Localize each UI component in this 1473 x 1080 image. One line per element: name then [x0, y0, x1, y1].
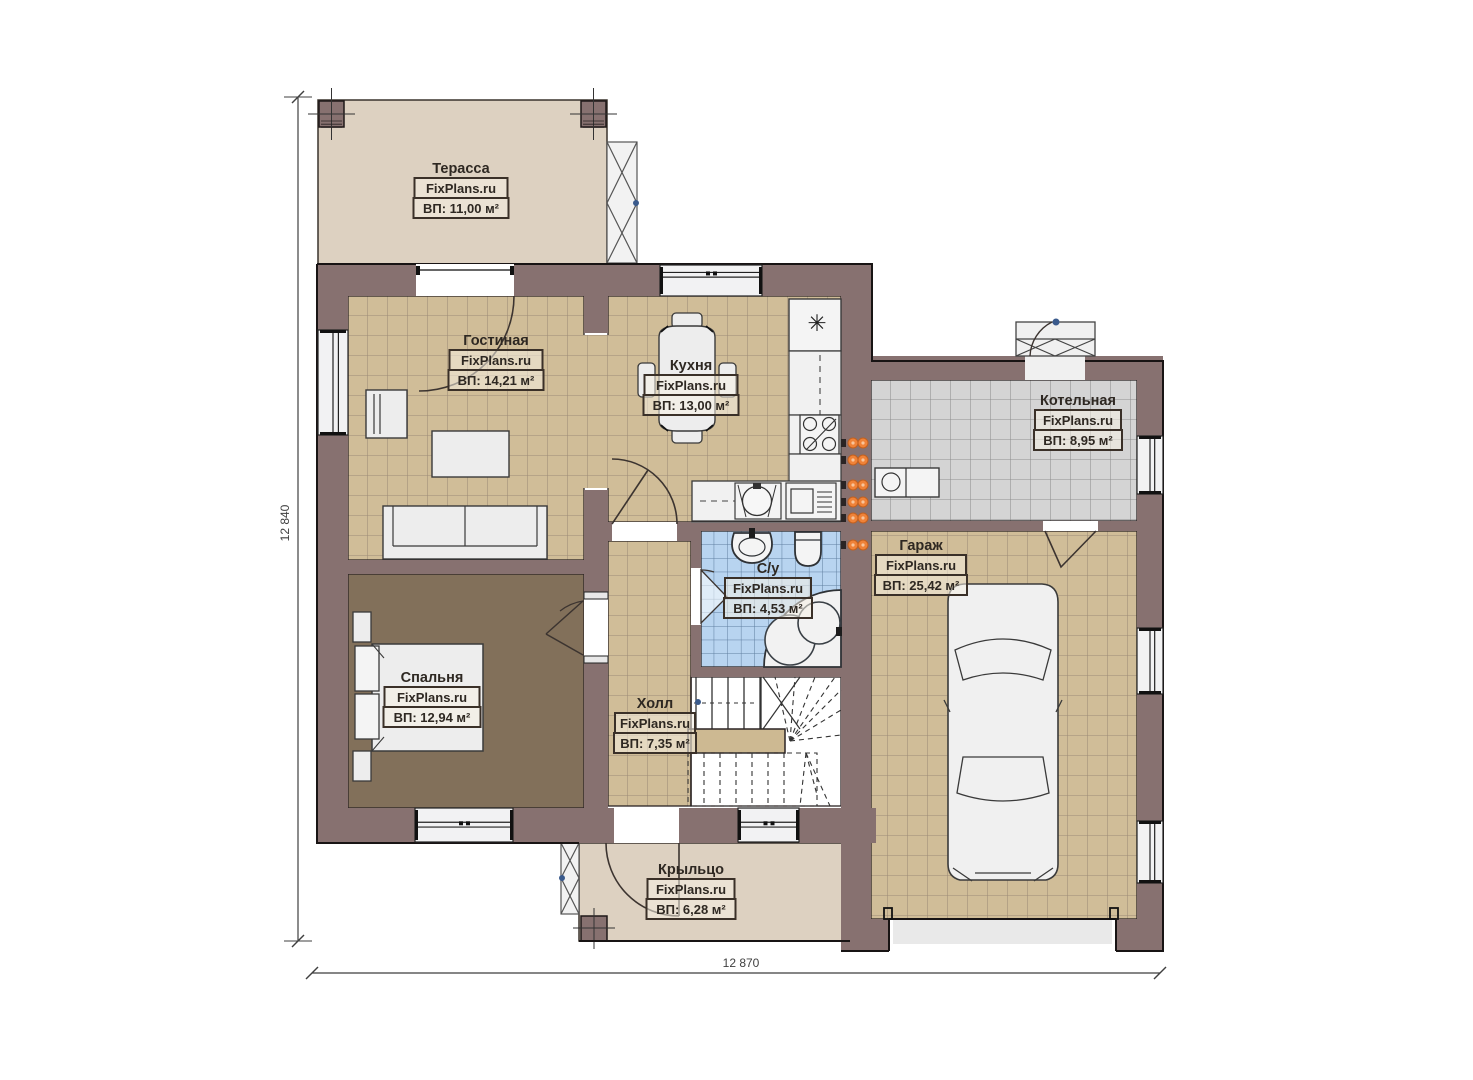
svg-text:Холл: Холл — [637, 696, 673, 712]
svg-text:ВП: 13,00 м²: ВП: 13,00 м² — [653, 398, 730, 413]
svg-text:ВП: 4,53 м²: ВП: 4,53 м² — [733, 601, 803, 616]
svg-text:FixPlans.ru: FixPlans.ru — [733, 581, 803, 596]
svg-text:FixPlans.ru: FixPlans.ru — [886, 558, 956, 573]
svg-text:ВП: 11,00 м²: ВП: 11,00 м² — [423, 201, 500, 216]
svg-text:Гараж: Гараж — [899, 538, 943, 554]
svg-text:FixPlans.ru: FixPlans.ru — [397, 690, 467, 705]
svg-text:Терасса: Терасса — [432, 161, 490, 177]
svg-text:Крыльцо: Крыльцо — [658, 862, 724, 878]
svg-text:FixPlans.ru: FixPlans.ru — [461, 353, 531, 368]
svg-text:FixPlans.ru: FixPlans.ru — [656, 378, 726, 393]
svg-text:ВП: 14,21 м²: ВП: 14,21 м² — [458, 373, 535, 388]
svg-text:FixPlans.ru: FixPlans.ru — [1043, 413, 1113, 428]
svg-text:Гостиная: Гостиная — [463, 333, 529, 349]
svg-text:ВП: 6,28 м²: ВП: 6,28 м² — [656, 902, 726, 917]
svg-text:FixPlans.ru: FixPlans.ru — [426, 181, 496, 196]
svg-text:✳: ✳ — [807, 310, 826, 336]
svg-text:12 840: 12 840 — [278, 504, 292, 541]
svg-text:ВП: 12,94 м²: ВП: 12,94 м² — [394, 710, 471, 725]
svg-text:FixPlans.ru: FixPlans.ru — [620, 716, 690, 731]
svg-text:Кухня: Кухня — [670, 358, 712, 374]
svg-text:Спальня: Спальня — [401, 670, 464, 686]
svg-text:ВП: 25,42 м²: ВП: 25,42 м² — [883, 578, 960, 593]
svg-text:ВП: 7,35 м²: ВП: 7,35 м² — [620, 736, 690, 751]
svg-text:С/у: С/у — [757, 561, 780, 577]
svg-text:FixPlans.ru: FixPlans.ru — [656, 882, 726, 897]
svg-text:12 870: 12 870 — [723, 956, 760, 970]
svg-text:Котельная: Котельная — [1040, 393, 1116, 409]
svg-text:ВП: 8,95 м²: ВП: 8,95 м² — [1043, 433, 1113, 448]
